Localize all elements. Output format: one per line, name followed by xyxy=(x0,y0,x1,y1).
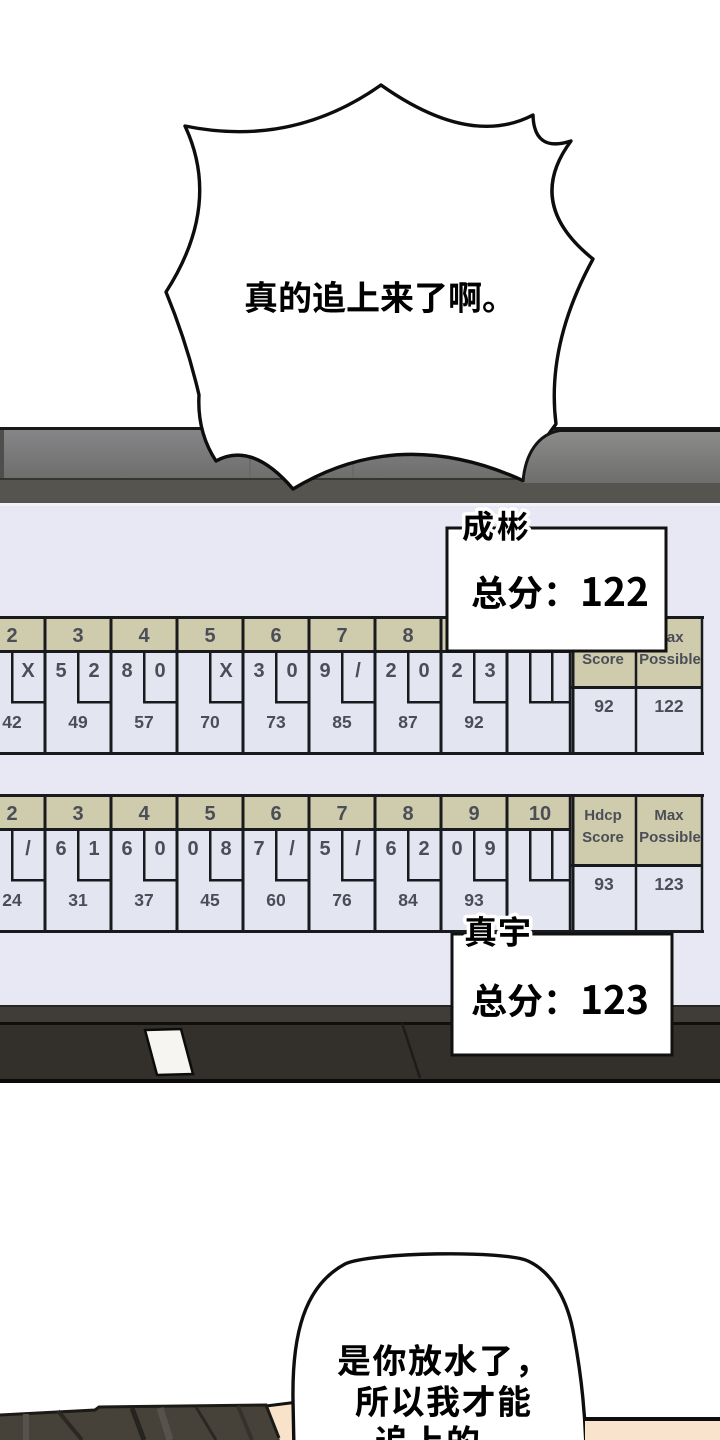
svg-text:3: 3 xyxy=(72,803,83,825)
svg-text:9: 9 xyxy=(319,660,330,682)
svg-text:Possible: Possible xyxy=(639,829,701,846)
svg-text:X: X xyxy=(219,660,233,682)
svg-text:70: 70 xyxy=(200,712,220,732)
svg-text:8: 8 xyxy=(402,803,413,825)
svg-text:/: / xyxy=(355,838,361,860)
svg-text:3: 3 xyxy=(484,660,495,682)
svg-text:6: 6 xyxy=(270,803,281,825)
svg-text:7: 7 xyxy=(336,803,347,825)
svg-text:2: 2 xyxy=(88,660,99,682)
svg-text:Possible: Possible xyxy=(639,651,701,668)
svg-text:X: X xyxy=(21,660,35,682)
svg-text:7: 7 xyxy=(336,625,347,647)
svg-text:123: 123 xyxy=(654,874,683,894)
svg-text:57: 57 xyxy=(134,712,153,732)
svg-text:45: 45 xyxy=(200,890,220,910)
svg-text:37: 37 xyxy=(134,890,153,910)
svg-text:1: 1 xyxy=(88,838,99,860)
svg-text:/: / xyxy=(25,838,31,860)
svg-text:84: 84 xyxy=(398,890,418,910)
svg-text:Hdcp: Hdcp xyxy=(584,807,622,824)
svg-text:8: 8 xyxy=(121,660,132,682)
svg-text:9: 9 xyxy=(468,803,479,825)
svg-text:0: 0 xyxy=(286,660,297,682)
svg-text:5: 5 xyxy=(204,625,215,647)
svg-text:6: 6 xyxy=(385,838,396,860)
svg-text:42: 42 xyxy=(2,712,22,732)
svg-text:60: 60 xyxy=(266,890,286,910)
svg-text:5: 5 xyxy=(319,838,330,860)
svg-text:93: 93 xyxy=(594,874,614,894)
svg-text:73: 73 xyxy=(266,712,286,732)
svg-text:24: 24 xyxy=(2,890,22,910)
svg-text:Max: Max xyxy=(654,807,684,824)
svg-text:0: 0 xyxy=(154,660,165,682)
svg-text:6: 6 xyxy=(270,625,281,647)
svg-text:122: 122 xyxy=(654,696,683,716)
svg-text:6: 6 xyxy=(121,838,132,860)
svg-text:0: 0 xyxy=(154,838,165,860)
svg-text:8: 8 xyxy=(402,625,413,647)
svg-text:2: 2 xyxy=(418,838,429,860)
svg-text:6: 6 xyxy=(55,838,66,860)
svg-text:Score: Score xyxy=(582,651,624,668)
svg-text:3: 3 xyxy=(253,660,264,682)
svg-text:5: 5 xyxy=(204,803,215,825)
svg-text:0: 0 xyxy=(187,838,198,860)
svg-text:92: 92 xyxy=(594,696,614,716)
svg-text:3: 3 xyxy=(0,838,1,860)
svg-text:9: 9 xyxy=(484,838,495,860)
svg-text:2: 2 xyxy=(6,803,17,825)
svg-text:76: 76 xyxy=(332,890,352,910)
svg-text:0: 0 xyxy=(418,660,429,682)
svg-text:Score: Score xyxy=(582,829,624,846)
svg-text:2: 2 xyxy=(385,660,396,682)
svg-text:7: 7 xyxy=(253,838,264,860)
svg-text:93: 93 xyxy=(464,890,484,910)
svg-text:2: 2 xyxy=(6,625,17,647)
svg-text:87: 87 xyxy=(398,712,417,732)
svg-text:4: 4 xyxy=(138,803,150,825)
svg-text:2: 2 xyxy=(451,660,462,682)
svg-text:85: 85 xyxy=(332,712,352,732)
svg-text:0: 0 xyxy=(451,838,462,860)
svg-text:8: 8 xyxy=(220,838,231,860)
svg-text:4: 4 xyxy=(138,625,150,647)
svg-text:/: / xyxy=(355,660,361,682)
svg-text:92: 92 xyxy=(464,712,484,732)
svg-text:5: 5 xyxy=(55,660,66,682)
svg-text:10: 10 xyxy=(529,803,551,825)
svg-text:/: / xyxy=(289,838,295,860)
svg-text:31: 31 xyxy=(68,890,88,910)
svg-text:3: 3 xyxy=(72,625,83,647)
svg-text:49: 49 xyxy=(68,712,88,732)
